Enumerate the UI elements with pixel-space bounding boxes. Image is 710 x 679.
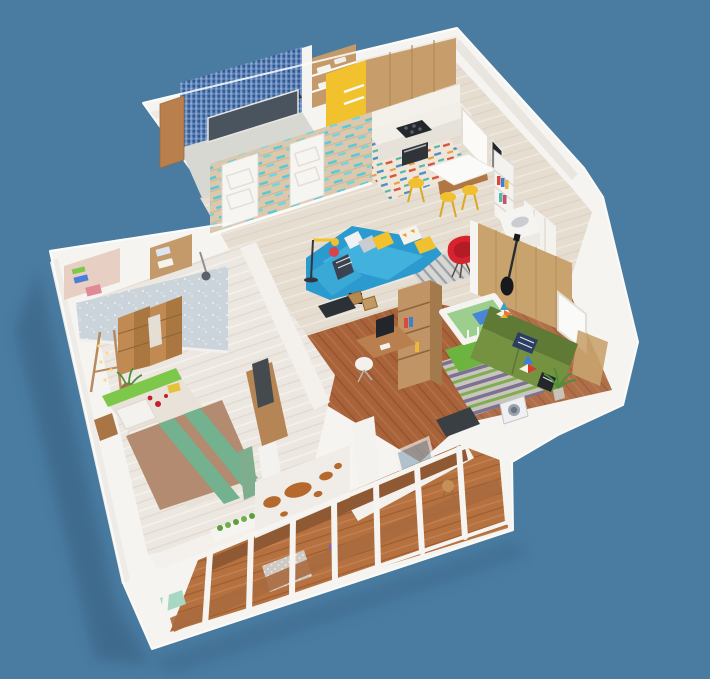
- burner: [410, 130, 414, 134]
- string-light: [105, 351, 108, 354]
- bathroom-wood-cabinet: [160, 96, 184, 168]
- apartment-render: [0, 0, 710, 679]
- book: [415, 342, 419, 352]
- string-light: [109, 368, 112, 371]
- book: [497, 176, 501, 185]
- floor-plan-canvas: [0, 0, 710, 679]
- shelving-divider-side: [430, 280, 442, 386]
- book: [499, 193, 503, 202]
- string-light: [97, 344, 100, 347]
- window-mullion: [376, 484, 378, 566]
- red-throw: [329, 247, 339, 257]
- hall-door-left: [222, 153, 258, 228]
- window-mullion: [334, 501, 335, 581]
- window-mullion: [292, 518, 293, 596]
- nursery-wall-edge: [470, 220, 478, 295]
- burner: [404, 126, 408, 130]
- book: [404, 318, 408, 328]
- string-light: [103, 378, 106, 381]
- book: [501, 178, 505, 187]
- bathroom-divider-wall: [302, 45, 312, 112]
- burner: [418, 127, 422, 131]
- vacuum-body: [202, 272, 211, 281]
- window-mullion: [249, 536, 251, 611]
- hanging-dress: [148, 314, 162, 348]
- book: [505, 180, 509, 189]
- burner: [412, 124, 416, 128]
- book: [409, 317, 413, 327]
- string-light: [99, 360, 102, 363]
- book: [503, 195, 507, 204]
